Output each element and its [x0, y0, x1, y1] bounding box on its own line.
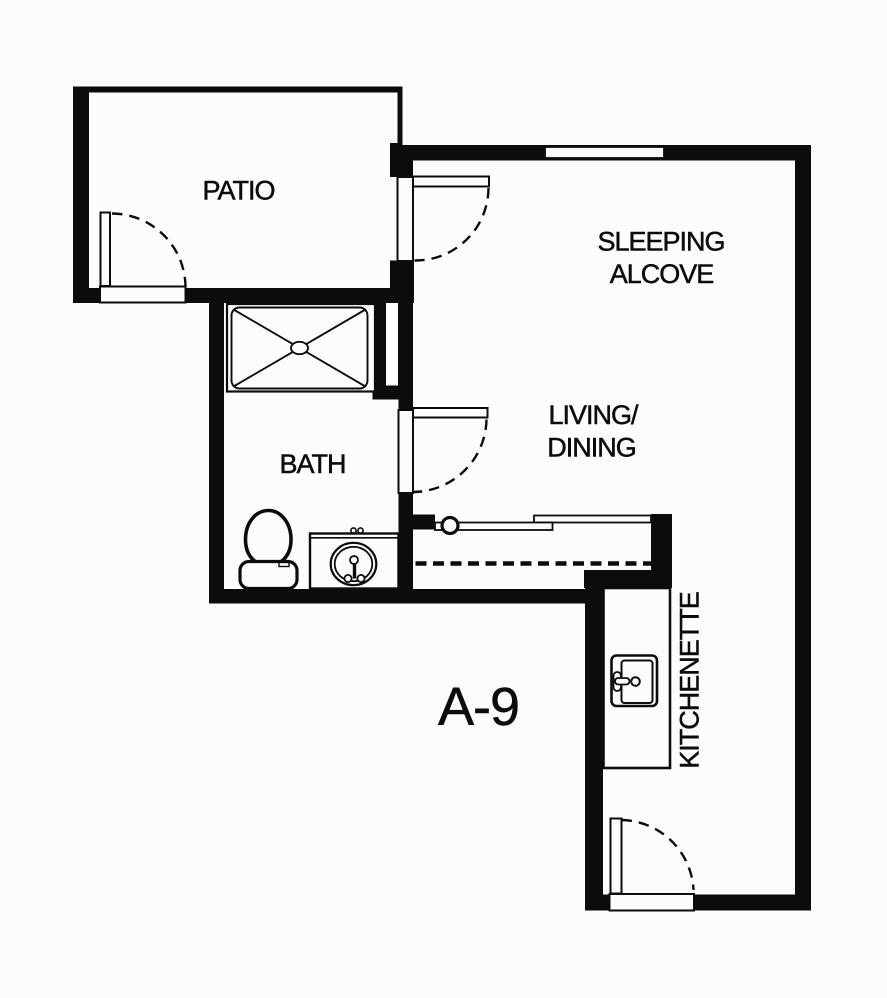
svg-text:KITCHENETTE: KITCHENETTE: [675, 592, 705, 769]
svg-text:LIVING/: LIVING/: [548, 400, 639, 430]
svg-text:ALCOVE: ALCOVE: [610, 259, 714, 289]
svg-text:SLEEPING: SLEEPING: [597, 227, 724, 257]
svg-text:DINING: DINING: [547, 433, 636, 463]
svg-text:BATH: BATH: [279, 449, 345, 479]
svg-text:A-9: A-9: [438, 677, 519, 737]
svg-text:PATIO: PATIO: [202, 176, 274, 206]
